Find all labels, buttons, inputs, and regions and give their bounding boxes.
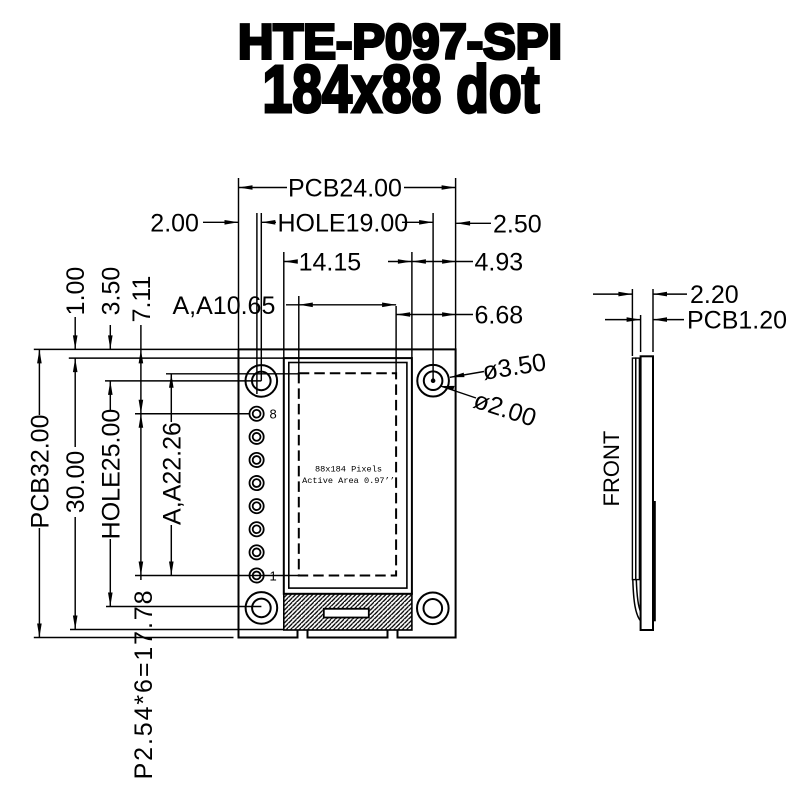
svg-text:6.68: 6.68 [475, 302, 524, 330]
svg-text:HOLE19.00: HOLE19.00 [278, 209, 409, 237]
svg-text:A,A22.26: A,A22.26 [158, 422, 186, 525]
svg-text:1: 1 [270, 568, 277, 583]
svg-text:HOLE25.00: HOLE25.00 [97, 409, 125, 540]
svg-text:2.50: 2.50 [493, 210, 542, 238]
svg-text:8: 8 [270, 406, 277, 421]
svg-text:88x184 Pixels: 88x184 Pixels [315, 465, 382, 475]
svg-text:A,A10.65: A,A10.65 [173, 292, 276, 320]
svg-text:PCB1.20: PCB1.20 [687, 307, 787, 335]
svg-text:P2.54*6=17.78: P2.54*6=17.78 [130, 589, 158, 780]
svg-text:184x88 dot: 184x88 dot [262, 51, 539, 126]
svg-text:1.00: 1.00 [62, 267, 90, 316]
svg-text:14.15: 14.15 [299, 249, 362, 277]
svg-text:PCB32.00: PCB32.00 [26, 415, 54, 529]
svg-text:2.20: 2.20 [690, 281, 739, 309]
svg-text:Active Area 0.97’’: Active Area 0.97’’ [302, 476, 395, 486]
svg-text:7.11: 7.11 [128, 276, 156, 323]
svg-text:4.93: 4.93 [475, 249, 524, 277]
svg-text:2.00: 2.00 [150, 209, 199, 237]
svg-text:30.00: 30.00 [62, 451, 90, 514]
svg-text:3.50: 3.50 [97, 267, 125, 316]
svg-text:FRONT: FRONT [599, 431, 624, 507]
svg-text:PCB24.00: PCB24.00 [288, 175, 402, 203]
